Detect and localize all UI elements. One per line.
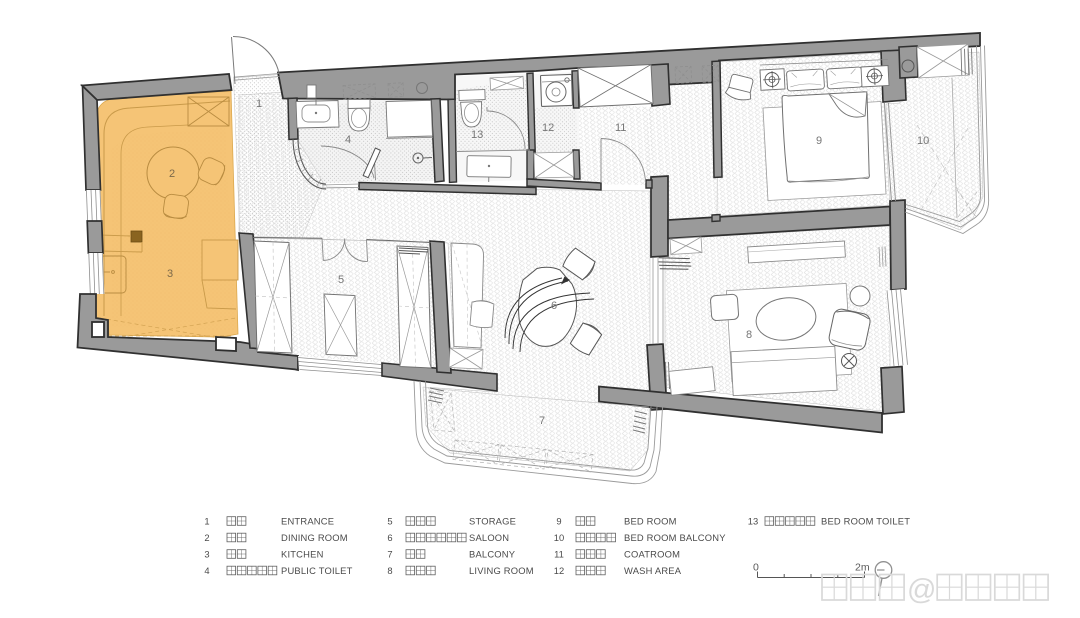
svg-text:4: 4 — [345, 134, 351, 146]
svg-text:11: 11 — [554, 549, 564, 560]
svg-text:KITCHEN: KITCHEN — [281, 549, 324, 560]
svg-text:2: 2 — [204, 532, 209, 543]
svg-text:1: 1 — [204, 516, 209, 527]
svg-text:8: 8 — [746, 329, 752, 341]
svg-text:SALOON: SALOON — [469, 532, 509, 543]
svg-text:COATROOM: COATROOM — [624, 549, 680, 560]
svg-text:8: 8 — [387, 565, 392, 576]
svg-text:13: 13 — [748, 516, 758, 527]
svg-text:12: 12 — [542, 122, 554, 134]
svg-text:3: 3 — [167, 268, 173, 280]
svg-text:3: 3 — [204, 549, 209, 560]
svg-text:7: 7 — [387, 549, 392, 560]
svg-text:PUBLIC TOILET: PUBLIC TOILET — [281, 565, 353, 576]
svg-text:9: 9 — [816, 135, 822, 147]
svg-text:13: 13 — [471, 129, 483, 141]
svg-text:6: 6 — [551, 300, 557, 312]
svg-text:2m: 2m — [855, 562, 870, 574]
svg-text:12: 12 — [554, 565, 564, 576]
svg-text:BED ROOM BALCONY: BED ROOM BALCONY — [624, 532, 726, 543]
svg-text:11: 11 — [615, 122, 626, 134]
svg-text:LIVING ROOM: LIVING ROOM — [469, 565, 534, 576]
svg-text:BED ROOM: BED ROOM — [624, 516, 677, 527]
svg-text:1: 1 — [256, 98, 262, 110]
svg-text:BALCONY: BALCONY — [469, 549, 516, 560]
svg-text:BED ROOM TOILET: BED ROOM TOILET — [821, 516, 910, 527]
svg-text:ENTRANCE: ENTRANCE — [281, 516, 334, 527]
svg-text:2: 2 — [169, 168, 175, 180]
svg-text:WASH AREA: WASH AREA — [624, 565, 682, 576]
svg-text:5: 5 — [338, 274, 344, 286]
svg-text:DINING ROOM: DINING ROOM — [281, 532, 348, 543]
svg-text:5: 5 — [387, 516, 392, 527]
svg-text:10: 10 — [554, 532, 564, 543]
svg-text:@: @ — [907, 574, 936, 606]
svg-text:10: 10 — [917, 135, 929, 147]
svg-text:STORAGE: STORAGE — [469, 516, 516, 527]
svg-text:0: 0 — [753, 562, 759, 574]
svg-text:4: 4 — [204, 565, 209, 576]
svg-text:6: 6 — [387, 532, 392, 543]
svg-text:9: 9 — [556, 516, 561, 527]
svg-text:7: 7 — [539, 415, 545, 427]
